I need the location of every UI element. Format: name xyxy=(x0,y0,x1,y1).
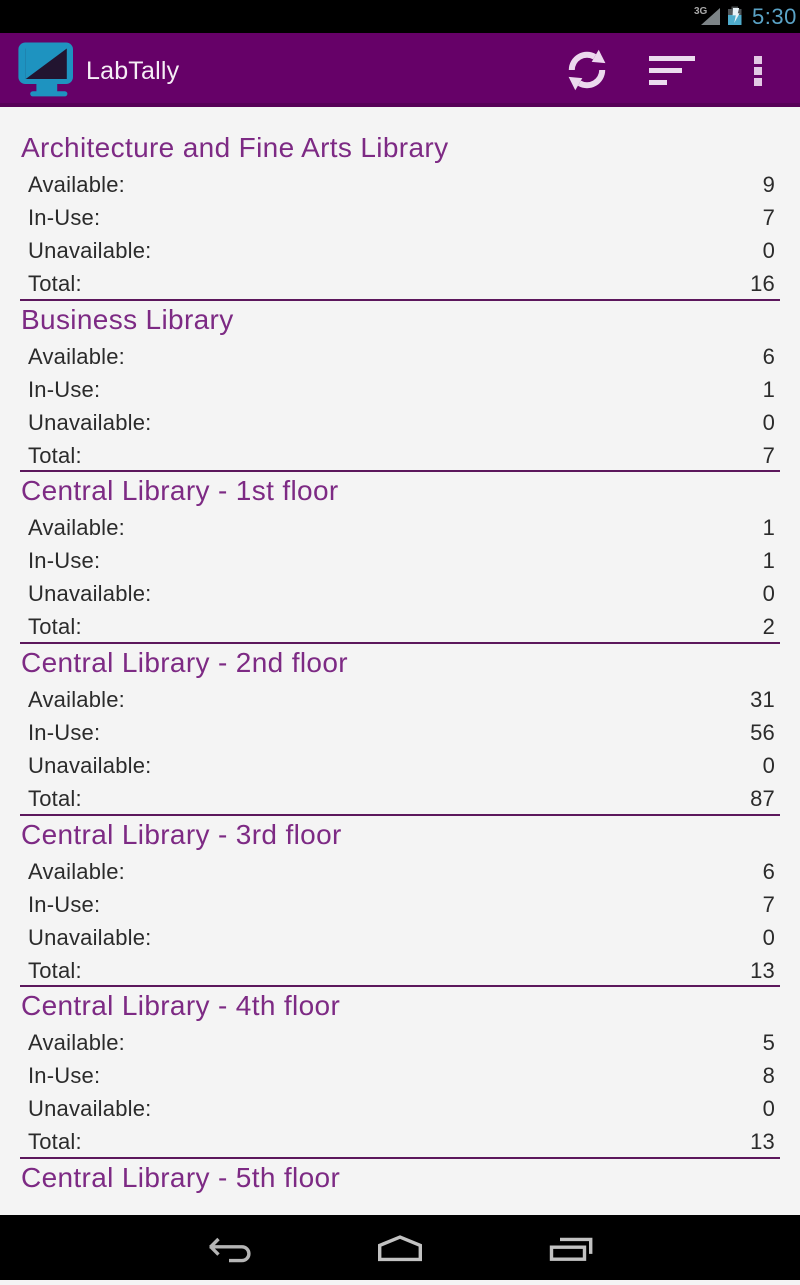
svg-text:5:30: 5:30 xyxy=(752,4,797,29)
svg-text:3G: 3G xyxy=(694,6,708,17)
